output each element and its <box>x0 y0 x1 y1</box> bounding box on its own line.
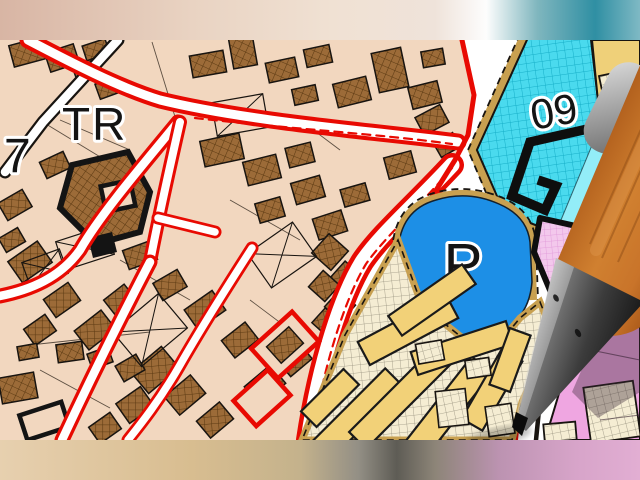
cream-grid-building <box>543 422 576 443</box>
blur-strip-bottom <box>0 440 640 480</box>
cream-grid-building <box>415 340 444 364</box>
zone-09-label: 09 <box>527 84 581 138</box>
building <box>421 48 445 68</box>
zoning-map-photo: 09 P 25.3 7 TR <box>0 0 640 480</box>
building <box>56 341 84 362</box>
cream-grid-building <box>435 389 469 428</box>
building <box>0 372 38 404</box>
district-tr-label: TR <box>62 98 127 150</box>
cream-grid-building <box>415 340 444 364</box>
cream-grid-building <box>543 422 576 443</box>
cream-grid-building <box>435 389 469 428</box>
cream-grid-building <box>465 357 491 378</box>
building <box>17 343 39 360</box>
district-number-label: 7 <box>4 130 31 183</box>
cream-grid-building <box>465 357 491 378</box>
building <box>56 341 84 362</box>
building <box>421 48 445 68</box>
screenshot-stage: 09 P 25.3 7 TR <box>0 0 640 480</box>
blur-strip-top <box>0 0 640 40</box>
building <box>229 35 258 69</box>
building <box>229 35 258 69</box>
building <box>17 343 39 360</box>
building <box>0 372 38 404</box>
